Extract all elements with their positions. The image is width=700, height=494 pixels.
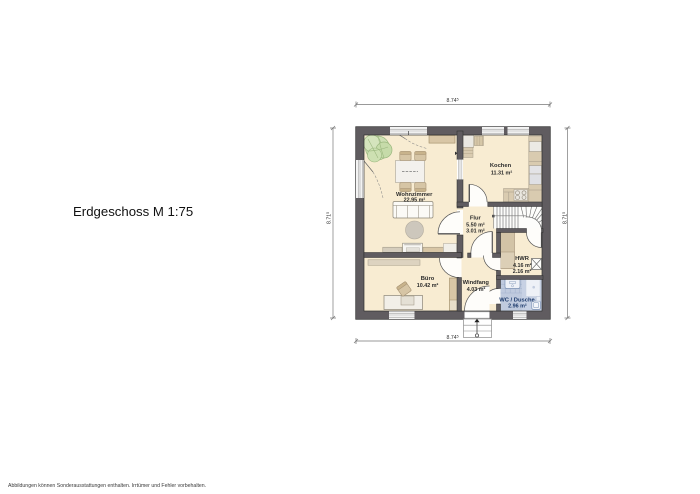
svg-text:10.42 m²: 10.42 m² [417,283,439,289]
svg-text:2.96 m²: 2.96 m² [508,303,527,309]
svg-text:Büro: Büro [421,276,435,282]
svg-text:HWR: HWR [515,256,530,262]
svg-text:Erdgeschoss M 1:75: Erdgeschoss M 1:75 [73,204,193,219]
svg-text:2.16 m²: 2.16 m² [513,269,532,275]
svg-text:Flur: Flur [470,216,482,222]
svg-text:5.50 m²: 5.50 m² [466,222,485,228]
svg-text:Kochen: Kochen [490,163,512,169]
svg-text:11.31 m²: 11.31 m² [491,171,512,177]
svg-text:22.95 m²: 22.95 m² [404,197,426,203]
svg-text:4.03 m²: 4.03 m² [467,287,486,293]
svg-text:Windfang: Windfang [463,280,490,286]
svg-text:3.01 m²: 3.01 m² [466,229,485,235]
svg-text:Abbildungen können Sonderausst: Abbildungen können Sonderausstattungen e… [8,483,206,489]
